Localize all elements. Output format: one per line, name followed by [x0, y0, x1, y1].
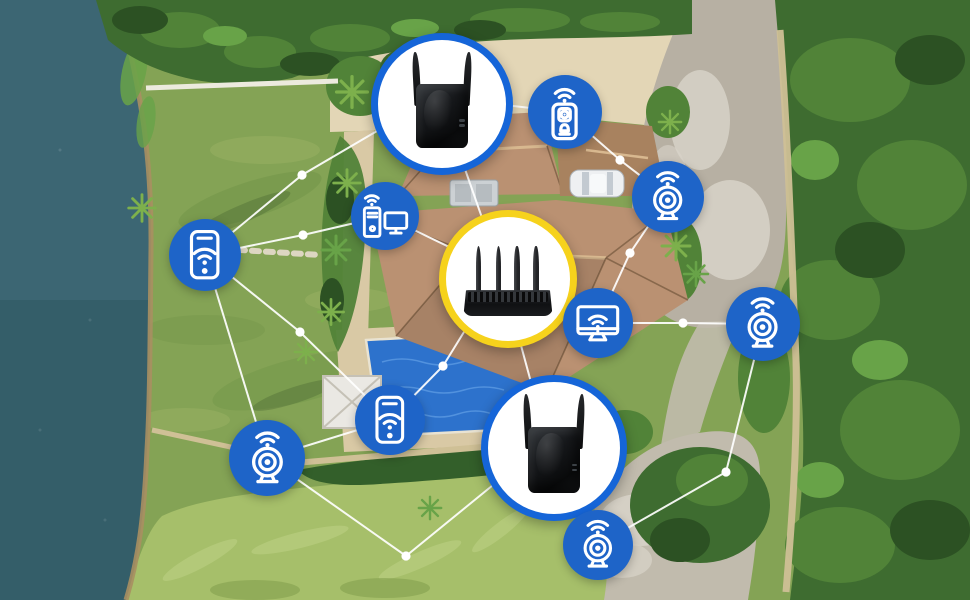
webcam-icon	[730, 291, 795, 356]
router-body	[463, 290, 552, 316]
smartphone-icon	[173, 223, 236, 286]
smartphone-icon	[359, 389, 421, 451]
node-router	[439, 210, 577, 348]
node-webcam-bottom	[563, 510, 633, 580]
video-doorbell-icon	[532, 79, 597, 144]
wifi-router-device	[446, 217, 570, 341]
wifi-extender-device	[378, 40, 506, 168]
node-webcam-far-right	[726, 287, 800, 361]
node-phone-bottom	[355, 385, 425, 455]
node-doorbell	[528, 75, 602, 149]
node-webcam-bottom-left	[229, 420, 305, 496]
router-antenna	[514, 246, 520, 293]
extender-body	[416, 84, 467, 148]
wifi-extender-device	[488, 382, 620, 514]
device-nodes-layer	[0, 0, 970, 600]
smart-monitor-icon	[567, 292, 629, 354]
router-antenna	[533, 246, 539, 293]
mesh-wifi-aerial-illustration	[0, 0, 970, 600]
router-antenna	[496, 246, 502, 293]
node-webcam-right	[632, 161, 704, 233]
node-desktop-pc	[351, 182, 419, 250]
webcam-icon	[234, 425, 301, 492]
node-extender-top	[371, 33, 513, 175]
webcam-icon	[567, 514, 629, 576]
node-smart-monitor	[563, 288, 633, 358]
desktop-pc-icon	[355, 186, 415, 246]
node-phone-left	[169, 219, 241, 291]
webcam-icon	[636, 165, 699, 228]
extender-body	[528, 427, 581, 493]
node-extender-bottom	[481, 375, 627, 521]
router-antenna	[476, 246, 482, 293]
